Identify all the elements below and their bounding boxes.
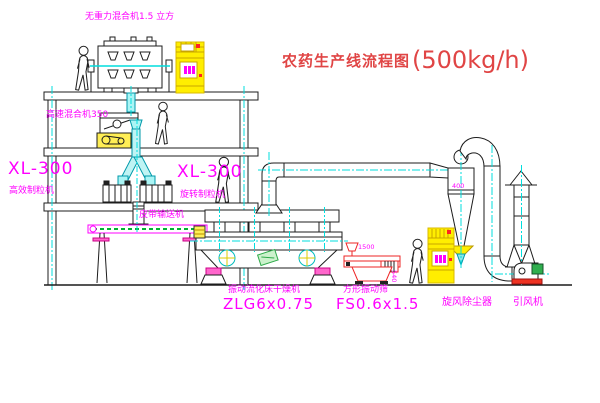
gravity-free-mixer-label: 无重力混合机1.5 立方 <box>85 13 174 22</box>
person-top-floor <box>76 46 90 90</box>
sieve-height-dimension: 540 <box>390 270 398 282</box>
granulator-center-name-label: 旋转制粒机 <box>180 191 225 200</box>
person-ground <box>410 239 424 283</box>
granulator-left-model-label: XL-300 <box>8 161 73 178</box>
granulator-center-model-label: XL-300 <box>177 164 242 181</box>
dryer-model-label: ZLG6x0.75 <box>223 297 314 312</box>
bucket-elevator-2 <box>428 228 454 283</box>
dryer-exhaust-duct <box>256 152 461 216</box>
diagram-title-text: 农药生产线流程图 <box>282 50 410 71</box>
gravity-free-mixer-drawing <box>88 37 172 112</box>
square-sieve-drawing: 1500 540 <box>344 243 400 284</box>
cyclone-to-fan-duct <box>460 138 550 282</box>
belt-conveyor-label: 皮带输送机 <box>139 211 184 220</box>
fan-name-label: 引风机 <box>513 298 543 308</box>
induced-draft-fan-drawing <box>512 263 543 284</box>
sieve-name-label: 方形振动筛 <box>343 286 388 295</box>
sieve-length-dimension: 1500 <box>358 243 375 251</box>
belt-conveyor-drawing <box>88 225 207 283</box>
process-flow-diagram: 400 <box>0 0 600 403</box>
granulator-left-name-label: 高效制粒机 <box>9 187 54 196</box>
fluid-bed-dryer-drawing <box>190 207 348 284</box>
high-speed-mixer-label: 高速混合机350 <box>46 111 108 120</box>
diagram-capacity-text: (500kg/h) <box>412 46 529 74</box>
person-second-floor <box>156 102 169 144</box>
diagram-title: 农药生产线流程图 (500kg/h) <box>282 46 529 74</box>
cyclone-name-label: 旋风除尘器 <box>442 298 492 308</box>
bucket-elevator-1 <box>176 42 204 93</box>
cyclone-size-label: 400 <box>452 182 464 190</box>
dryer-name-label: 振动流化床干燥机 <box>228 286 300 295</box>
sieve-model-label: FS0.6x1.5 <box>336 297 419 312</box>
